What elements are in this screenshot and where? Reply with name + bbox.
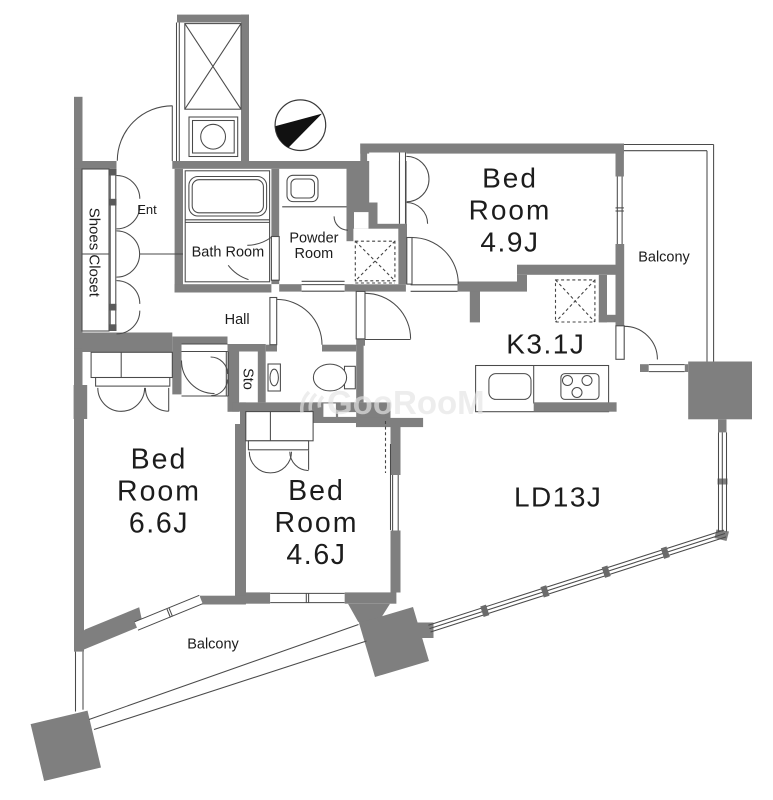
svg-text:K3.1J: K3.1J xyxy=(506,329,585,360)
svg-text:GooRooM: GooRooM xyxy=(327,384,485,421)
svg-text:Hall: Hall xyxy=(225,312,250,328)
svg-text:Room: Room xyxy=(469,194,552,225)
svg-text:6.6J: 6.6J xyxy=(129,508,189,540)
svg-text:Room: Room xyxy=(274,507,358,539)
svg-text:Powder: Powder xyxy=(289,230,338,246)
svg-text:Bath Room: Bath Room xyxy=(192,245,265,261)
svg-text:LD13J: LD13J xyxy=(514,482,602,513)
svg-text:Balcony: Balcony xyxy=(187,637,239,653)
svg-text:Bed: Bed xyxy=(482,162,538,193)
svg-text:Bed: Bed xyxy=(288,475,345,507)
svg-text:Room: Room xyxy=(117,476,201,508)
svg-text:Shoes Closet: Shoes Closet xyxy=(86,208,103,298)
svg-text:4.6J: 4.6J xyxy=(286,539,346,571)
svg-text:Balcony: Balcony xyxy=(638,249,690,265)
svg-text:Ent: Ent xyxy=(137,202,157,217)
svg-text:Room: Room xyxy=(295,246,334,262)
svg-text:4.9J: 4.9J xyxy=(480,226,539,257)
svg-text:Sto: Sto xyxy=(240,368,256,390)
svg-text:Bed: Bed xyxy=(131,444,188,476)
